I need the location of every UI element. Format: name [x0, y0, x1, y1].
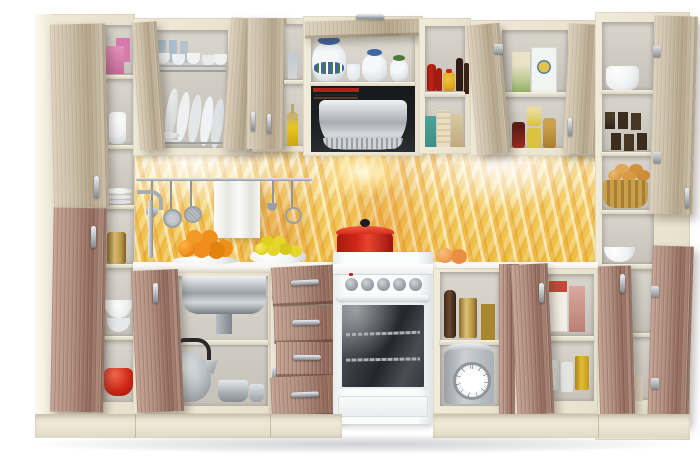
oven-door-glass	[340, 303, 426, 389]
door-handle	[267, 114, 271, 133]
mustard-jar	[443, 72, 455, 91]
jam-jars-yellow	[527, 106, 541, 126]
hinge	[651, 378, 659, 389]
cereal-box-art	[537, 60, 551, 74]
brass-canister	[107, 232, 126, 264]
food-box-white	[548, 280, 568, 332]
yellow-can	[575, 356, 589, 390]
strainer-2	[291, 181, 293, 209]
kitchen-scale-dial	[453, 362, 491, 400]
food-box-rose	[569, 286, 585, 332]
stove-knob	[377, 278, 390, 291]
soy-sauce-bottles	[456, 58, 463, 91]
ketchup-bottle	[427, 64, 436, 91]
brass-spice-canisters	[459, 298, 477, 338]
plinth-seam	[135, 414, 136, 438]
wire-shelf	[154, 65, 226, 67]
range-hood-mesh	[323, 138, 403, 149]
knob-indicator-dot	[349, 273, 353, 276]
door-handle	[685, 188, 689, 208]
floor-shadow	[28, 434, 688, 454]
oven-door-handle	[337, 295, 429, 301]
hinge	[653, 152, 661, 163]
stove-knob	[409, 278, 422, 291]
teacup-pair	[347, 64, 360, 81]
left-column-upper-door	[50, 23, 109, 208]
red-pot-knob	[360, 219, 370, 227]
ladle-2	[272, 181, 274, 205]
stove-knob	[361, 278, 374, 291]
peaches	[437, 248, 453, 263]
stove-knob	[393, 278, 406, 291]
large-teapot-band	[314, 62, 344, 74]
kitchen-towel	[214, 181, 260, 238]
cooker-top-edge	[333, 264, 433, 275]
kitchen-product-photo	[0, 0, 700, 459]
tea-box-teal	[425, 116, 436, 147]
lift-up-door	[305, 18, 421, 38]
door-handle	[620, 274, 625, 293]
oranges-plate	[172, 256, 238, 265]
skimmer	[170, 181, 172, 211]
drawer-3-handle	[293, 355, 321, 360]
cook-books-on-hood	[313, 88, 359, 92]
pink-gift-boxes	[106, 46, 124, 74]
left-column-lower-door	[50, 208, 107, 413]
jam-jar-red	[512, 122, 525, 148]
door-handle	[568, 118, 572, 136]
hinge	[651, 286, 659, 297]
left-tall-cabinet-lit-side	[35, 14, 51, 438]
base-pantry-door	[511, 263, 555, 415]
sugar-bowl	[390, 59, 408, 82]
sugar-bowl-lid	[393, 55, 405, 61]
honey-jar	[543, 118, 556, 148]
mustard-jar-cap	[446, 69, 452, 73]
strainer	[190, 181, 192, 208]
hinge	[653, 46, 661, 57]
drawer-2-handle	[292, 320, 320, 326]
strainer-2-disc	[285, 207, 302, 224]
right-column-lower-left-door	[596, 266, 635, 415]
tea-box-beige	[437, 110, 450, 147]
tea-canisters	[605, 112, 615, 129]
hinge	[494, 44, 503, 54]
saucepan	[218, 380, 248, 402]
sink-basin	[182, 276, 266, 314]
hot-sauce-bottle	[436, 68, 442, 91]
door-handle	[539, 283, 544, 303]
faucet-spout	[137, 190, 163, 210]
oranges	[178, 240, 195, 257]
white-casserole-pot	[606, 66, 639, 90]
olive-oil-bottle	[287, 112, 298, 146]
small-red-pot	[104, 368, 133, 396]
lemons	[255, 243, 268, 255]
bread-basket	[603, 180, 648, 208]
door-handle	[251, 112, 255, 131]
small-teapot-lid	[367, 49, 382, 56]
plate-stack	[106, 188, 132, 194]
small-teapot	[362, 54, 387, 82]
drawer-1	[271, 264, 341, 307]
lift-up-door-handle	[356, 14, 384, 19]
plinth-seam	[598, 414, 599, 438]
stove-knob	[345, 278, 358, 291]
tea-box-tan	[451, 114, 463, 147]
right-column-lower-right-door	[647, 245, 694, 424]
door-handle	[153, 283, 158, 303]
sink-drain-pipe	[216, 314, 232, 334]
door-handle	[91, 226, 96, 248]
water-glass	[288, 52, 297, 79]
white-jug	[109, 112, 126, 144]
creamer-jug	[249, 384, 264, 402]
skimmer-disc	[163, 209, 182, 228]
strainer-mesh	[184, 206, 202, 223]
door-handle	[94, 176, 99, 198]
cooker-storage-drawer	[338, 396, 428, 417]
cereal-box-green	[512, 52, 530, 93]
pepper-mill	[444, 290, 456, 338]
oil-bottle-neck	[291, 104, 294, 114]
